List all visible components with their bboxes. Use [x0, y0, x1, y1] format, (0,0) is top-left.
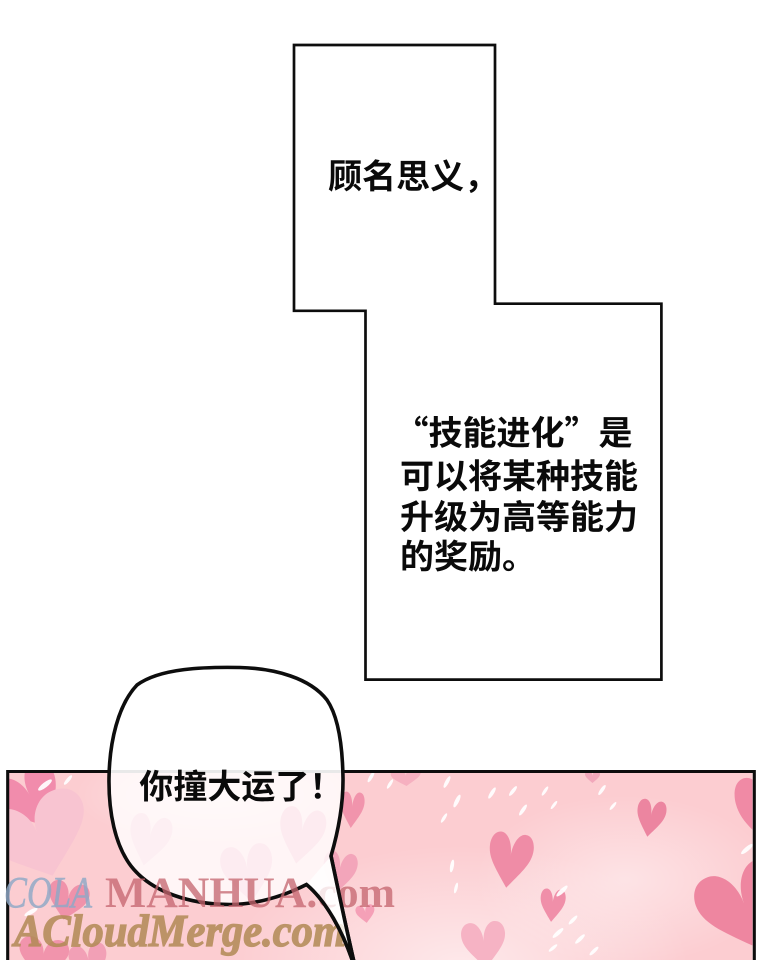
svg-text:ACloudMerge.com: ACloudMerge.com: [11, 905, 346, 956]
